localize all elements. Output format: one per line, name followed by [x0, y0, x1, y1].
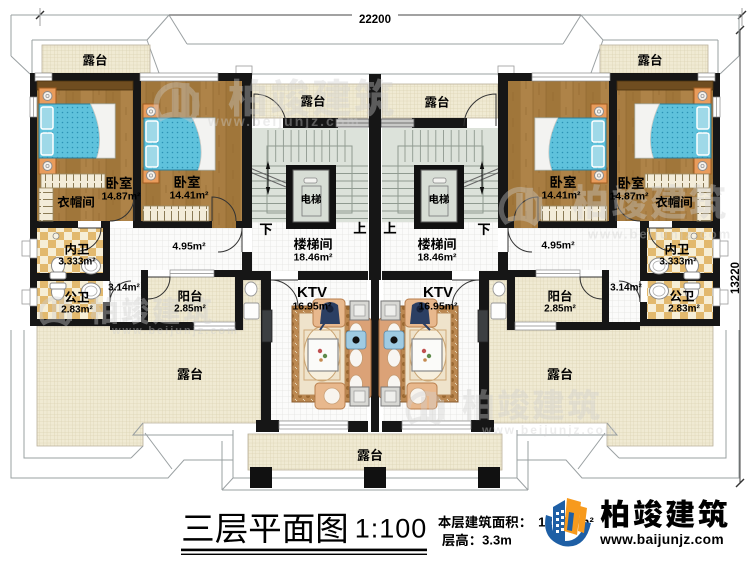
svg-text:3.3m: 3.3m: [482, 533, 512, 548]
svg-text:16.95m²: 16.95m²: [292, 301, 332, 313]
svg-text:2.85m²: 2.85m²: [174, 304, 206, 315]
svg-text:16.95m²: 16.95m²: [418, 301, 458, 313]
svg-text:www.beijunjz.com: www.beijunjz.com: [481, 423, 618, 437]
svg-text:2.83m²: 2.83m²: [668, 304, 700, 315]
svg-text:3.333m²: 3.333m²: [58, 257, 96, 268]
svg-text:1:100: 1:100: [355, 514, 428, 544]
svg-text:14.87m²: 14.87m²: [609, 191, 649, 203]
svg-text:3.333m²: 3.333m²: [659, 257, 697, 268]
svg-text:18.46m²: 18.46m²: [417, 252, 457, 264]
svg-text:4.95m²: 4.95m²: [541, 240, 575, 252]
svg-text:www.beijunjz.com: www.beijunjz.com: [587, 227, 732, 242]
svg-text:14.41m²: 14.41m²: [541, 190, 581, 202]
svg-text:www.beijunjz.com: www.beijunjz.com: [207, 113, 361, 129]
svg-text:www.baijunjz.com: www.baijunjz.com: [599, 532, 724, 547]
svg-text:13220: 13220: [730, 262, 742, 294]
svg-text:2.85m²: 2.85m²: [544, 304, 576, 315]
svg-text:3.14m²: 3.14m²: [108, 283, 140, 294]
svg-text:22200: 22200: [359, 14, 391, 26]
svg-text:2.83m²: 2.83m²: [61, 305, 93, 316]
svg-text:KTV: KTV: [423, 284, 453, 301]
svg-text:4.95m²: 4.95m²: [172, 241, 206, 253]
svg-text:18.46m²: 18.46m²: [293, 252, 333, 264]
svg-text:KTV: KTV: [297, 284, 327, 301]
svg-text:14.41m²: 14.41m²: [169, 190, 209, 202]
svg-text:14.87m²: 14.87m²: [101, 191, 141, 203]
svg-text:3.14m²: 3.14m²: [610, 283, 642, 294]
svg-text:www.beijunjz.com: www.beijunjz.com: [111, 325, 239, 337]
